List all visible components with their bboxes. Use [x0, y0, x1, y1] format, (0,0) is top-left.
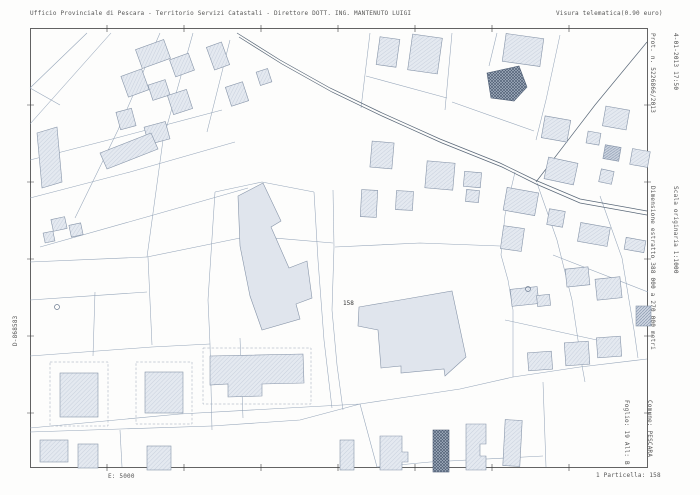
- map-frame: [27, 25, 651, 471]
- map-canvas: 158: [0, 0, 700, 495]
- buildings: [37, 33, 651, 472]
- parcel-158-building: [358, 291, 466, 376]
- cadastral-extract-page: Ufficio Provinciale di Pescara - Territo…: [0, 0, 700, 495]
- dark-hatched-building: [487, 66, 527, 101]
- dark-hatched-building-2: [433, 430, 449, 472]
- parcel-158-label: 158: [343, 300, 354, 307]
- school-building: [238, 183, 312, 330]
- parcel-boundaries: [30, 33, 648, 467]
